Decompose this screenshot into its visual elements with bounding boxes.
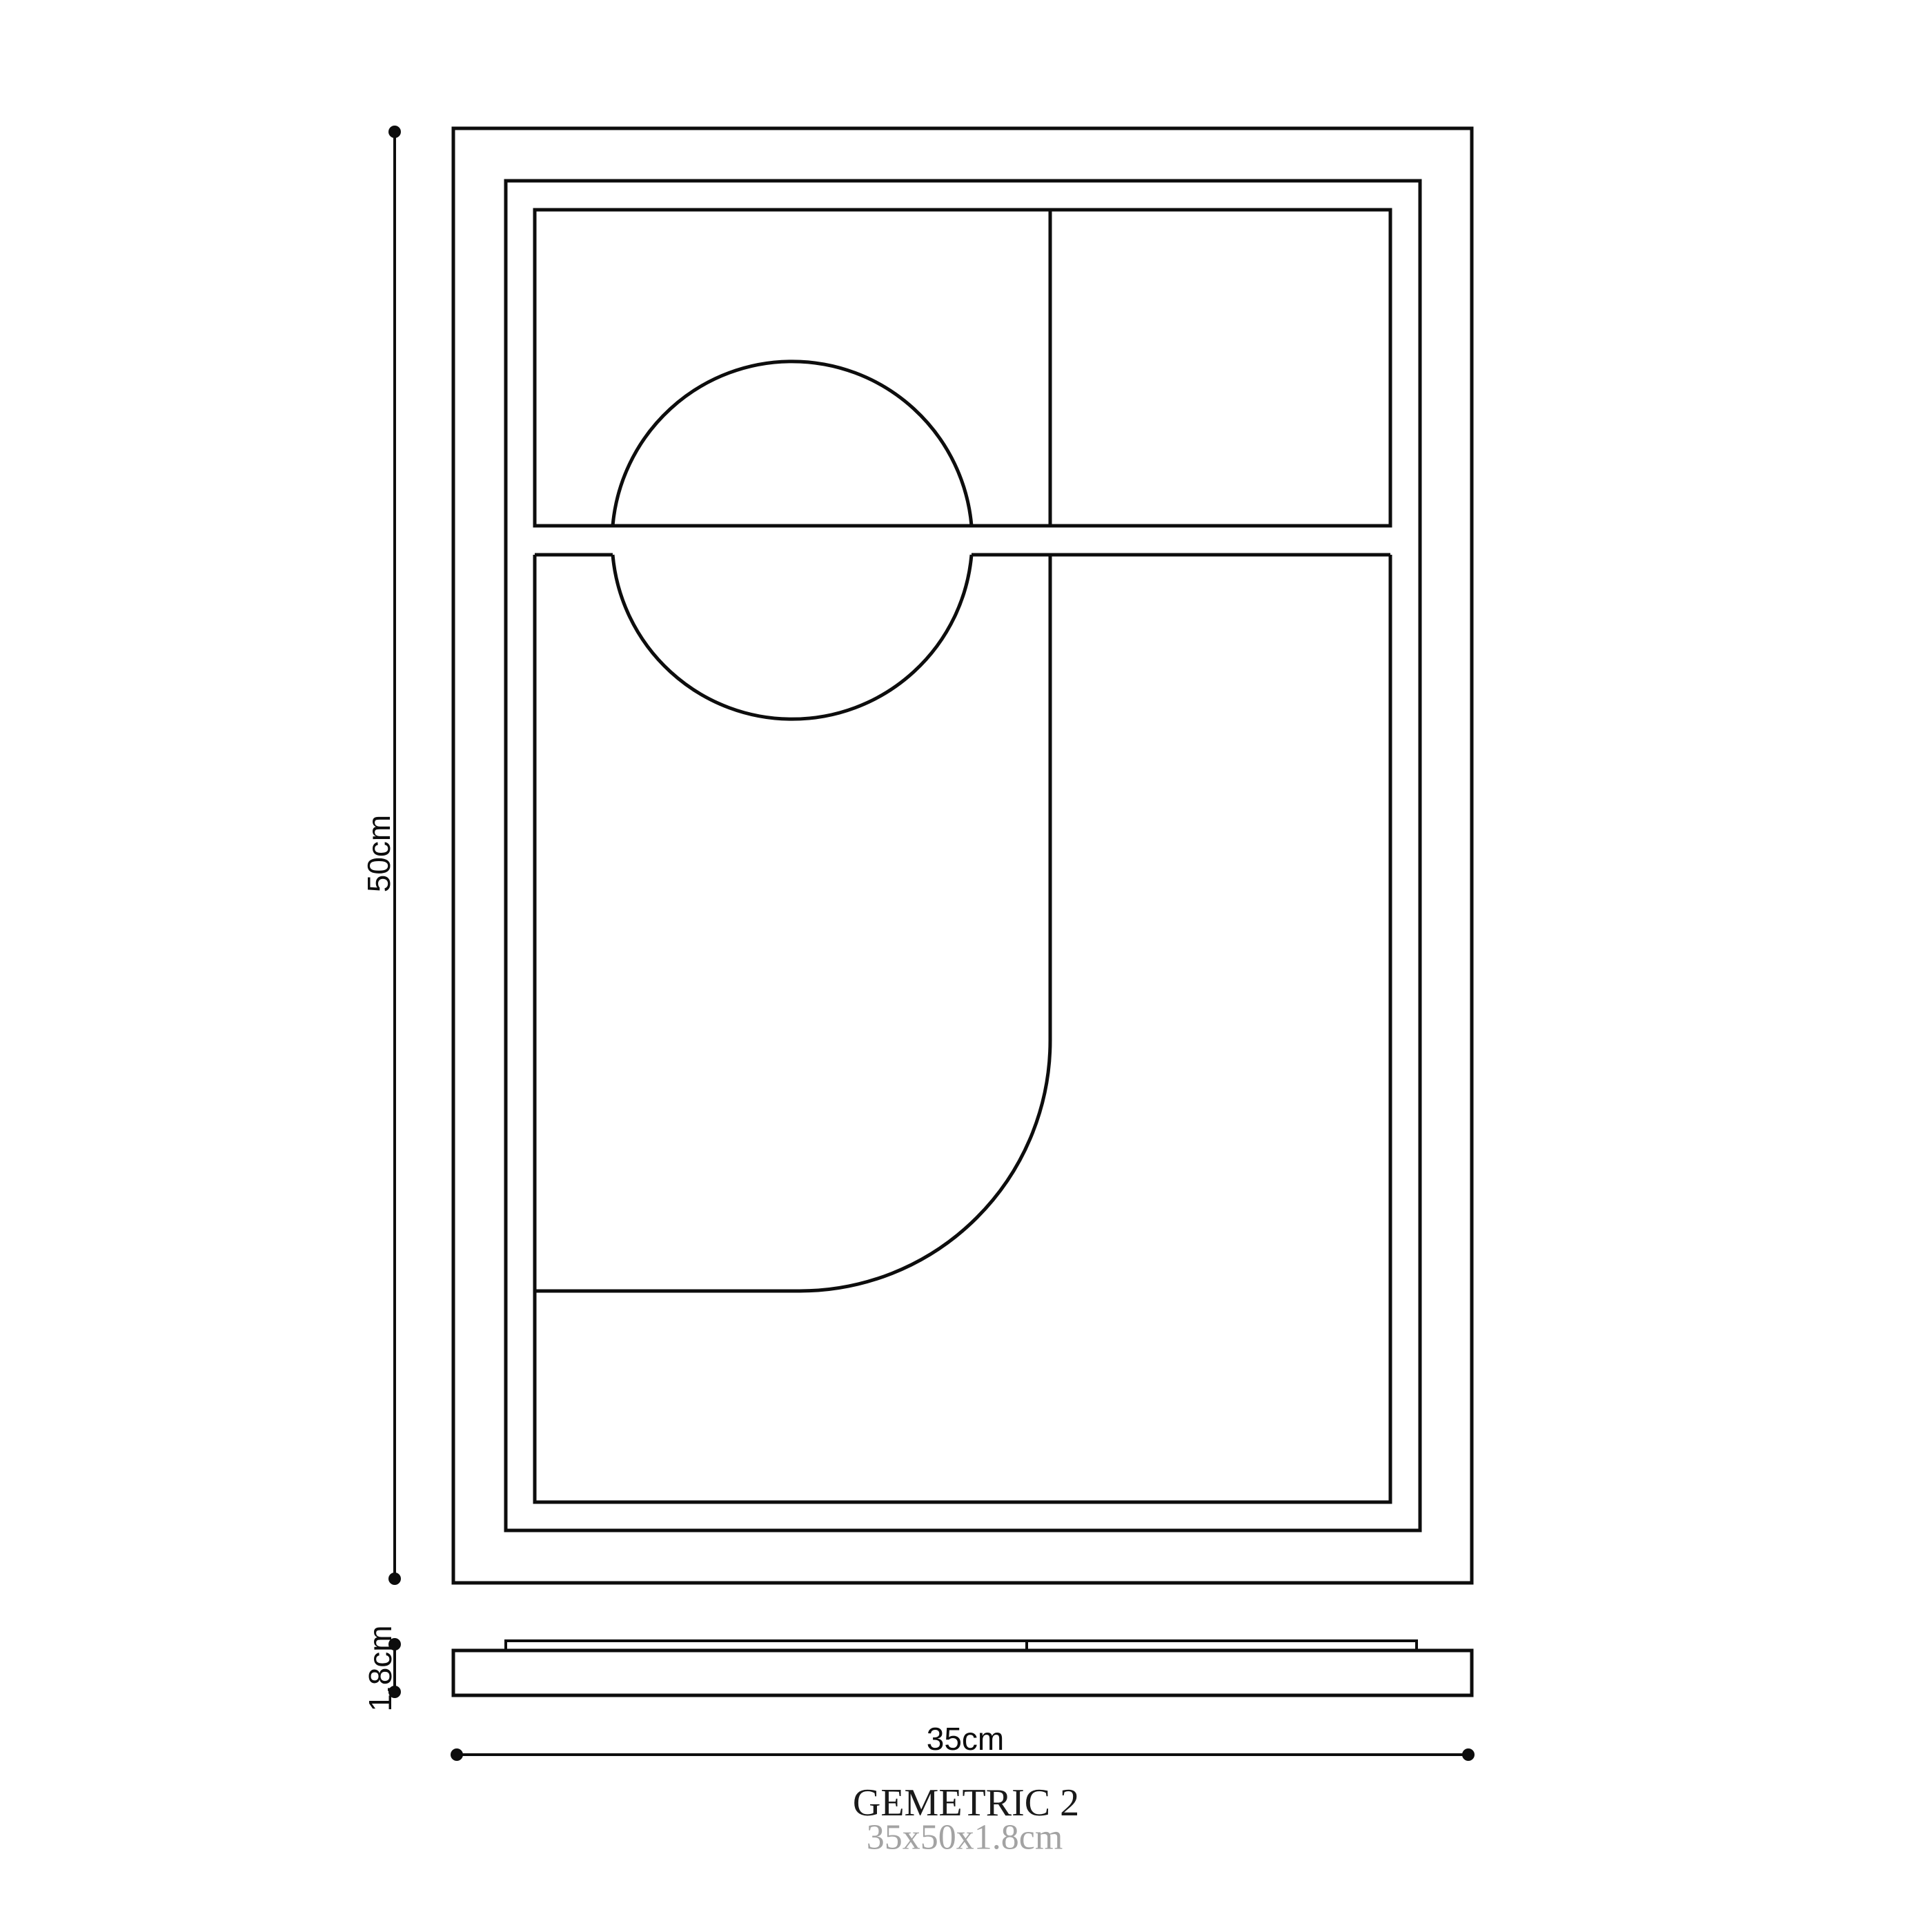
panel-top-left: [535, 210, 1050, 526]
height-dimension-end-dot-bottom: [388, 1573, 401, 1585]
circle-upper-arc: [613, 362, 972, 526]
height-dimension-label: 50cm: [361, 815, 397, 892]
depth-dimension-label: 1.8cm: [362, 1625, 398, 1711]
j-curve-divider: [535, 555, 1050, 1291]
inner-frame-outline: [506, 181, 1420, 1530]
panel-top-right: [1050, 210, 1390, 526]
technical-drawing-canvas: 50cm 1.8cm 35cm GEMETRIC 2 35x50x1.8cm: [0, 0, 1932, 1932]
front-view: [453, 128, 1472, 1583]
outer-frame-outline: [453, 128, 1472, 1583]
width-dimension-end-dot-right: [1462, 1748, 1475, 1761]
title-block: GEMETRIC 2 35x50x1.8cm: [853, 1782, 1079, 1857]
width-dimension-label: 35cm: [927, 1721, 1004, 1757]
dimension-annotations: 50cm 1.8cm 35cm: [361, 126, 1475, 1761]
circle-lower-arc: [613, 555, 972, 719]
side-profile-slab: [453, 1650, 1472, 1695]
product-subtitle: 35x50x1.8cm: [867, 1818, 1063, 1857]
width-dimension-end-dot-left: [451, 1748, 463, 1761]
height-dimension-end-dot-top: [388, 126, 401, 138]
panel-bottom: [535, 555, 1390, 1502]
side-profile-view: [453, 1641, 1472, 1695]
